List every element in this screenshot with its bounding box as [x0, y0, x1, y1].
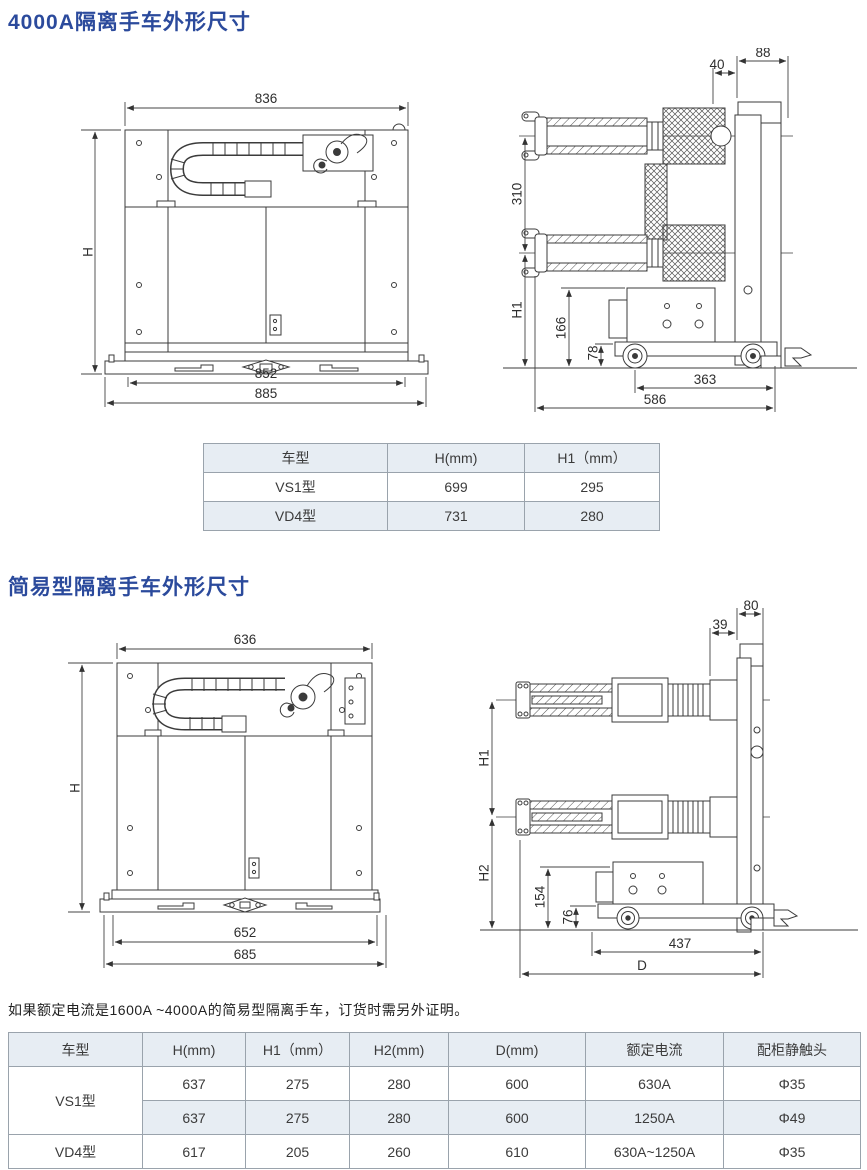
cell-d: 610: [449, 1135, 586, 1169]
col-header-d: D(mm): [449, 1033, 586, 1067]
col-header-model: 车型: [9, 1033, 143, 1067]
spec-table-4000a: 车型 H(mm) H1（mm） VS1型 699 295 VD4型 731 28…: [203, 443, 660, 531]
cell-h1: 280: [525, 502, 660, 531]
cable-chain: [177, 149, 303, 189]
front-view-4000a-drawing: 836 H 852 885: [75, 85, 450, 420]
col-header-contact: 配柜静触头: [724, 1033, 861, 1067]
section2-title: 简易型隔离手车外形尺寸: [8, 571, 250, 601]
dim-39-label: 39: [712, 617, 727, 632]
col-header-h2: H2(mm): [350, 1033, 449, 1067]
dim-652-label: 652: [234, 925, 257, 940]
cell-h: 617: [143, 1135, 246, 1169]
dim-88-label: 88: [755, 48, 770, 60]
lower-bellows: [668, 801, 710, 833]
col-header-h1: H1（mm）: [246, 1033, 350, 1067]
dim-80-label: 80: [743, 600, 758, 613]
dim-78-label: 78: [586, 345, 601, 360]
front-view-simple-drawing: 636 H 652 685: [60, 618, 405, 993]
wheel: [617, 907, 639, 929]
lower-insulator: [663, 225, 725, 281]
cell-model: VD4型: [9, 1135, 143, 1169]
dim-586-label: 586: [644, 392, 667, 407]
cell-current: 630A: [586, 1067, 724, 1101]
dim-H2-label: H2: [477, 864, 492, 881]
cell-model: VS1型: [204, 473, 388, 502]
cell-model: VS1型: [9, 1067, 143, 1135]
dim-H-label: H: [68, 783, 83, 793]
dim-D-label: D: [637, 958, 647, 973]
cell-h: 699: [388, 473, 525, 502]
cell-h1: 275: [246, 1067, 350, 1101]
dim-40-label: 40: [709, 57, 724, 72]
dim-310-label: 310: [510, 183, 525, 206]
cell-contact: Φ35: [724, 1135, 861, 1169]
chassis: [627, 288, 715, 342]
col-header-current: 额定电流: [586, 1033, 724, 1067]
dim-H1-label: H1: [477, 749, 492, 766]
mounting-plate: [735, 115, 761, 365]
cell-d: 600: [449, 1101, 586, 1135]
dim-636-label: 636: [234, 632, 257, 647]
chassis: [613, 862, 703, 904]
dim-852-label: 852: [255, 366, 278, 381]
col-header-h1: H1（mm）: [525, 444, 660, 473]
cell-contact: Φ49: [724, 1101, 861, 1135]
col-header-model: 车型: [204, 444, 388, 473]
upper-contact-arm: [530, 684, 612, 692]
side-view-4000a-drawing: 88 40 310 H1 166 78 363 586: [495, 48, 867, 420]
table-row: VD4型 731 280: [204, 502, 660, 531]
dim-76-label: 76: [561, 909, 576, 924]
cell-h1: 295: [525, 473, 660, 502]
order-note: 如果额定电流是1600A ~4000A的简易型隔离手车，订货时需另外证明。: [8, 1000, 469, 1020]
upper-bellows: [668, 684, 710, 716]
table-header-row: 车型 H(mm) H1（mm） H2(mm) D(mm) 额定电流 配柜静触头: [9, 1033, 861, 1067]
cell-h: 637: [143, 1067, 246, 1101]
cell-model: VD4型: [204, 502, 388, 531]
cell-current: 1250A: [586, 1101, 724, 1135]
cell-current: 630A~1250A: [586, 1135, 724, 1169]
dim-685-label: 685: [234, 947, 257, 962]
dim-437-label: 437: [669, 936, 692, 951]
cabinet-outline: [105, 124, 428, 374]
dim-H-label: H: [81, 247, 96, 257]
table-header-row: 车型 H(mm) H1（mm）: [204, 444, 660, 473]
side-view-simple-drawing: 80 39 H1 H2 154 76 437 D: [470, 600, 865, 990]
col-header-h: H(mm): [388, 444, 525, 473]
table-row: VS1型 699 295: [204, 473, 660, 502]
dim-885-label: 885: [255, 386, 278, 401]
cell-h2: 260: [350, 1135, 449, 1169]
lower-contact-arm: [530, 801, 612, 809]
cell-contact: Φ35: [724, 1067, 861, 1101]
cell-h1: 205: [246, 1135, 350, 1169]
table-row: VS1型 637 275 280 600 630A Φ35: [9, 1067, 861, 1101]
cell-h: 731: [388, 502, 525, 531]
mounting-plate: [737, 658, 751, 932]
wheel: [623, 344, 647, 368]
col-header-h: H(mm): [143, 1033, 246, 1067]
dim-836-label: 836: [255, 91, 278, 106]
table-row: VD4型 617 205 260 610 630A~1250A Φ35: [9, 1135, 861, 1169]
catalog-page: 4000A隔离手车外形尺寸: [0, 0, 867, 1170]
dim-166-label: 166: [554, 317, 569, 340]
dim-154-label: 154: [533, 885, 548, 908]
cell-h2: 280: [350, 1067, 449, 1101]
dim-363-label: 363: [694, 372, 717, 387]
section1-title: 4000A隔离手车外形尺寸: [8, 6, 251, 36]
cell-h1: 275: [246, 1101, 350, 1135]
dim-H1-label: H1: [510, 301, 525, 318]
cell-h2: 280: [350, 1101, 449, 1135]
cell-h: 637: [143, 1101, 246, 1135]
spec-table-simple: 车型 H(mm) H1（mm） H2(mm) D(mm) 额定电流 配柜静触头 …: [8, 1032, 861, 1169]
cell-d: 600: [449, 1067, 586, 1101]
cabinet-outline: [100, 663, 380, 912]
dimension-lines: [68, 643, 386, 968]
